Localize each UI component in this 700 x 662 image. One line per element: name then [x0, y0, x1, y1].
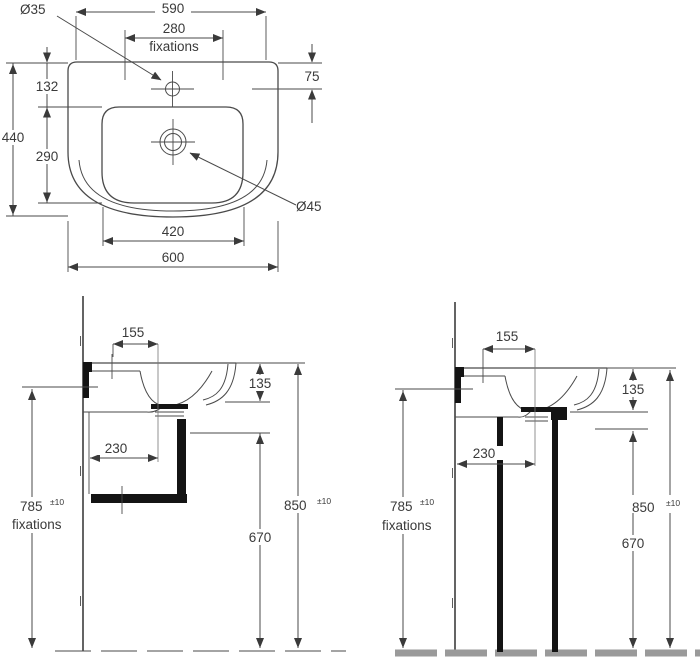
dim-230-left: 230 — [90, 441, 158, 458]
dim-290-label: 290 — [36, 149, 59, 164]
top-view: Ø35 Ø45 590 280 fixations — [0, 0, 323, 272]
dim-590-label: 590 — [162, 1, 185, 16]
dim-785-label-left: 785 — [20, 499, 43, 514]
dim-850-tol-left: ±10 — [317, 496, 331, 506]
dim-155-label-right: 155 — [496, 329, 519, 344]
dim-670-label-left: 670 — [249, 530, 272, 545]
dim-75: 75 — [252, 44, 323, 123]
dim-670-left: 670 — [190, 433, 276, 648]
wall-line-left — [81, 296, 84, 651]
side-view-pedestal: 155 230 135 670 — [380, 302, 700, 656]
fixations-label-right: fixations — [382, 518, 432, 533]
dim-785-fixations-left: 785 ±10 fixations — [11, 387, 98, 648]
dim-75-label: 75 — [304, 69, 319, 84]
dim-155-right: 155 — [483, 329, 535, 358]
dim-230-label-left: 230 — [105, 441, 128, 456]
fixations-label-top: fixations — [149, 39, 199, 54]
dim-135-right: 135 — [570, 369, 648, 412]
dia45-label: Ø45 — [296, 199, 322, 214]
dim-440-label: 440 — [2, 130, 25, 145]
dim-600-label: 600 — [162, 250, 185, 265]
dim-785-tol-left: ±10 — [50, 497, 64, 507]
dim-155-label-left: 155 — [122, 325, 145, 340]
dim-230-label-right: 230 — [473, 446, 496, 461]
dim-280-label: 280 — [163, 21, 186, 36]
drain-hole — [151, 119, 195, 165]
dim-670-label-right: 670 — [622, 536, 645, 551]
dim-850-tol-right: ±10 — [666, 498, 680, 508]
dim-132-label: 132 — [36, 79, 59, 94]
dim-850-label-left: 850 — [284, 498, 307, 513]
dim-135-label-left: 135 — [249, 376, 272, 391]
dim-230-right: 230 — [457, 446, 535, 464]
dim-850-label-right: 850 — [632, 500, 655, 515]
dim-155-left: 155 — [113, 325, 158, 357]
wall-line-right — [453, 302, 456, 656]
side-view-wall-hung: 155 230 135 670 — [11, 296, 346, 651]
dim-135-left: 135 — [225, 364, 275, 402]
dim-785-tol-right: ±10 — [420, 497, 434, 507]
drawing-canvas: Ø35 Ø45 590 280 fixations — [0, 0, 700, 662]
trap-pipes — [89, 412, 187, 514]
washbasin-technical-drawing: Ø35 Ø45 590 280 fixations — [0, 0, 700, 662]
pedestal-legs — [497, 417, 558, 652]
dim-850-left: 850 ±10 — [282, 364, 334, 648]
fixations-label-left: fixations — [12, 517, 62, 532]
dim-785-fixations-right: 785 ±10 fixations — [380, 389, 473, 648]
leader-dia45: Ø45 — [190, 153, 322, 214]
dim-420-label: 420 — [162, 224, 185, 239]
dim-280-fixations: 280 fixations — [125, 21, 223, 80]
dia35-label: Ø35 — [20, 2, 46, 17]
leader-dia35: Ø35 — [20, 2, 161, 80]
dim-135-label-right: 135 — [622, 382, 645, 397]
dim-785-label-right: 785 — [390, 499, 413, 514]
dim-670-right: 670 — [595, 429, 649, 648]
faucet-hole — [151, 71, 194, 107]
